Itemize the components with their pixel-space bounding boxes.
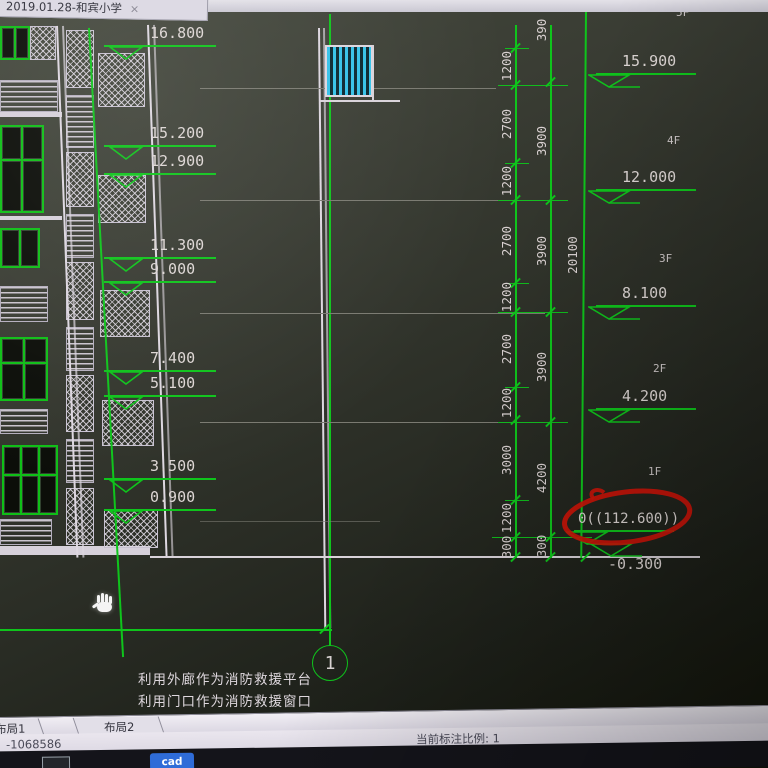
floor-label: 3F xyxy=(659,252,672,265)
cad-app-icon[interactable]: cad xyxy=(150,753,194,768)
grid-axis-line-1 xyxy=(329,14,331,646)
dim-text: 3900 xyxy=(535,113,549,169)
facade-hatch-block xyxy=(66,152,94,207)
louver-grille xyxy=(325,45,373,97)
facade-window xyxy=(0,337,48,401)
facade-hatch-block xyxy=(30,26,56,60)
dim-text: 2700 xyxy=(500,96,514,152)
elevation-value: 15.900 xyxy=(622,52,676,70)
facade-hatch-block xyxy=(66,262,94,320)
facade-louver-band xyxy=(0,286,48,322)
grille-outline xyxy=(372,45,374,101)
facade-window xyxy=(0,26,30,60)
dim-text: 1200 xyxy=(500,153,514,209)
elevation-value: 0.900 xyxy=(150,488,195,506)
floor-label: 2F xyxy=(653,362,666,375)
dim-text: 300 xyxy=(535,518,549,574)
elevation-value: 16.800 xyxy=(150,24,204,42)
note-text: 利用外廊作为消防救援平台 xyxy=(138,668,312,688)
dimension-line-total xyxy=(580,12,586,558)
facade-window xyxy=(2,445,58,515)
coordinates-readout: -1068586 xyxy=(6,737,62,752)
dim-text: 3900 xyxy=(535,223,549,279)
axis-number: 1 xyxy=(325,653,336,674)
elevation-value: 7.400 xyxy=(150,349,195,367)
facade-louver-band xyxy=(66,95,94,148)
floor-line xyxy=(200,422,545,423)
facade-louver-band xyxy=(0,409,48,434)
floor-line xyxy=(200,313,545,314)
grid-axis-bubble: 1 xyxy=(312,645,348,681)
dim-text: 2700 xyxy=(500,213,514,269)
dim-text: 1200 xyxy=(500,38,514,94)
facade-hatch-block xyxy=(98,53,145,107)
facade-louver-band xyxy=(0,80,58,112)
dim-text: 300 xyxy=(500,519,514,575)
note-text: 利用门口作为消防救援窗口 xyxy=(138,690,312,710)
elevation-value: 4.200 xyxy=(622,387,667,405)
elevation-value: 3.500 xyxy=(150,457,195,475)
facade-slab-line xyxy=(0,216,62,220)
dim-text: 3900 xyxy=(535,339,549,395)
elevation-value: 9.000 xyxy=(150,260,195,278)
tray-window-icon[interactable] xyxy=(42,756,70,768)
dimension-line-inner xyxy=(515,25,517,558)
elevation-value: 5.100 xyxy=(150,374,195,392)
elevation-value: 12.000 xyxy=(622,168,676,186)
floor-label: 4F xyxy=(667,134,680,147)
grille-outline xyxy=(320,100,400,102)
elevation-value: 12.900 xyxy=(150,152,204,170)
facade-window xyxy=(0,125,44,213)
file-tab-title: 2019.01.28-和宾小学 xyxy=(6,0,122,16)
elevation-value: -0.300 xyxy=(608,555,662,573)
floor-label: 1F xyxy=(648,465,661,478)
dim-text: 1200 xyxy=(500,375,514,431)
facade-hatch-block xyxy=(100,290,150,337)
drawing-canvas[interactable]: 1 1200 2 xyxy=(0,0,768,768)
facade-window xyxy=(0,228,40,268)
axis-leader-line xyxy=(0,629,332,631)
floor-line xyxy=(200,521,380,522)
dim-text-total: 20100 xyxy=(566,227,580,283)
close-icon[interactable]: × xyxy=(130,2,139,15)
dim-text: 1200 xyxy=(500,269,514,325)
dimension-line-mid xyxy=(550,25,552,558)
pan-hand-cursor xyxy=(92,591,118,617)
red-highlight-circle xyxy=(556,481,698,551)
facade-louver-band xyxy=(0,519,52,545)
dim-text: 2700 xyxy=(500,321,514,377)
dim-text: 3000 xyxy=(500,432,514,488)
elevation-value: 11.300 xyxy=(150,236,204,254)
facade-slab-line xyxy=(0,112,62,117)
elevation-value: 8.100 xyxy=(622,284,667,302)
elevation-value: 15.200 xyxy=(150,124,204,142)
dim-text: 4200 xyxy=(535,450,549,506)
floor-line xyxy=(200,200,545,201)
cad-application-window: 1 1200 2 xyxy=(0,0,768,768)
